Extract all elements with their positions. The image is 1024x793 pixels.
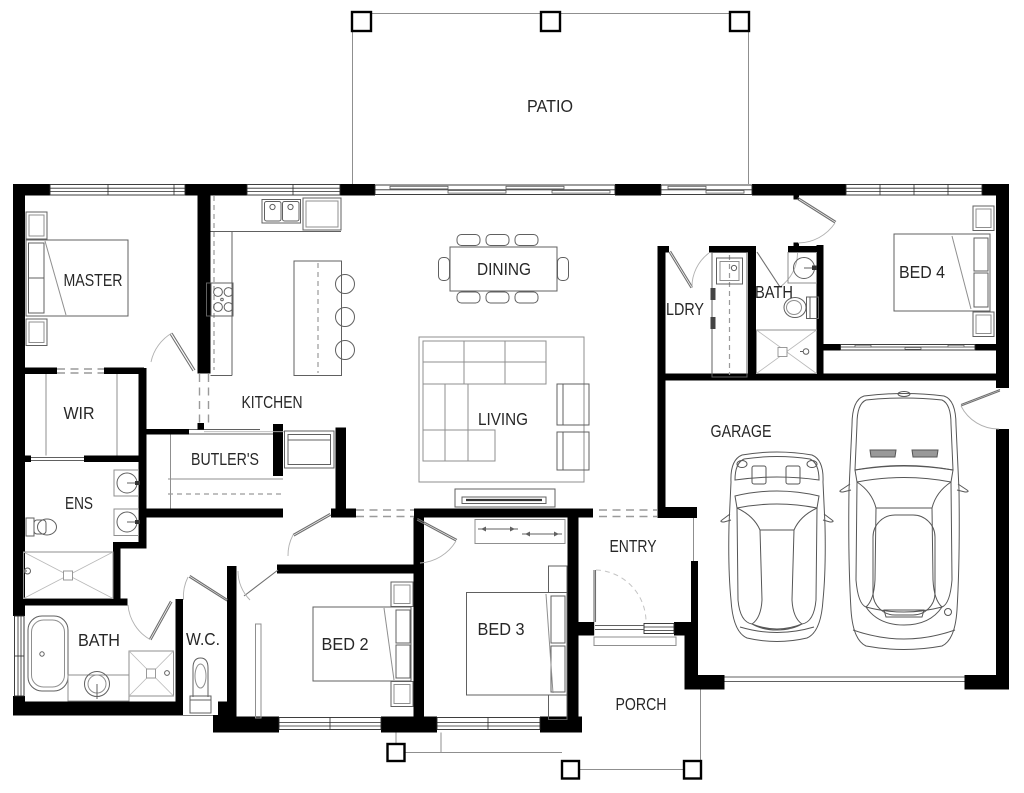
svg-text:LDRY: LDRY <box>666 299 704 319</box>
svg-text:W.C.: W.C. <box>186 629 220 649</box>
svg-text:LIVING: LIVING <box>478 409 528 429</box>
svg-text:WIR: WIR <box>64 403 95 423</box>
svg-text:BED 2: BED 2 <box>322 634 369 654</box>
svg-text:BED 4: BED 4 <box>899 262 945 282</box>
svg-text:ENTRY: ENTRY <box>610 536 657 556</box>
svg-text:PORCH: PORCH <box>616 694 667 714</box>
svg-text:KITCHEN: KITCHEN <box>242 392 303 412</box>
svg-text:DINING: DINING <box>477 259 531 279</box>
svg-text:BATH: BATH <box>755 282 793 302</box>
svg-text:BUTLER'S: BUTLER'S <box>191 449 259 469</box>
svg-text:BATH: BATH <box>78 630 120 650</box>
svg-text:PATIO: PATIO <box>527 96 573 116</box>
svg-text:BED 3: BED 3 <box>478 619 525 639</box>
svg-text:GARAGE: GARAGE <box>711 421 772 441</box>
svg-text:MASTER: MASTER <box>64 270 123 290</box>
svg-text:ENS: ENS <box>65 493 93 513</box>
